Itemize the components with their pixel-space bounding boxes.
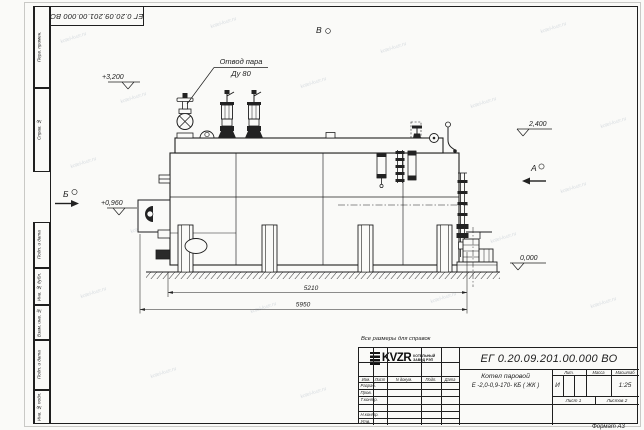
row-tkontr: Т.контр. xyxy=(361,397,378,402)
company-name: КОТЕЛЬНЫЙ ЗАВОД РЭП xyxy=(413,354,435,363)
row-nkontr: Н.контр. xyxy=(361,412,379,417)
view-arrow-b: Б xyxy=(55,189,79,207)
row-prov: Пров. xyxy=(361,390,372,395)
safety-valve-1 xyxy=(218,90,236,138)
col-podp: Подп. xyxy=(421,376,441,382)
foundation-block xyxy=(457,262,497,272)
valve-handwheel xyxy=(177,98,193,102)
elevation-mark-2400: 2,400 xyxy=(517,121,552,136)
product-name-line1: Котел паровой xyxy=(459,371,552,381)
row-razrab: Разраб. xyxy=(361,383,377,388)
steam-outlet-valve xyxy=(177,93,193,138)
burner-box xyxy=(138,200,170,232)
dimension-text: 5210 xyxy=(304,285,319,292)
elevation-text: +0,960 xyxy=(101,200,123,207)
col-docnum: N докум. xyxy=(387,376,421,382)
gauge-pipe-elbow xyxy=(446,122,457,153)
format-note: Формат А3 xyxy=(592,424,625,430)
elevation-text: 0,000 xyxy=(520,255,538,262)
elevation-mark-0000: 0,000 xyxy=(510,255,546,270)
document-number: ЕГ 0.20.09.201.00.000 ВО xyxy=(459,348,639,369)
reference-note: Все размеры для справок xyxy=(361,336,430,342)
col-data: Дата xyxy=(441,376,459,382)
view-arrow-a: А xyxy=(522,163,546,185)
row-utv: Утв. xyxy=(361,419,371,424)
boiler-body xyxy=(170,133,468,266)
safety-valve-2 xyxy=(245,90,263,138)
dimension-text: 5950 xyxy=(296,302,311,309)
sheets-total: Листов 2 xyxy=(595,396,639,404)
product-name-line2: Е -2,0-0,9-170- КБ ( ЖК ) xyxy=(459,381,552,390)
col-izm: Изм. xyxy=(359,376,373,382)
steam-outlet-text-2: Ду 80 xyxy=(230,69,251,78)
drawing-sheet: { "watermark": "kotel-kvzr.ru", "frame_s… xyxy=(0,0,644,430)
view-label: А xyxy=(530,163,537,173)
title-block: Изм. Лист N докум. Подп. Дата Разраб. Пр… xyxy=(358,347,638,424)
elevation-mark-0960: +0,960 xyxy=(101,200,137,215)
dome-fitting xyxy=(200,131,214,138)
ground-hatch xyxy=(146,272,500,279)
small-valve xyxy=(412,126,422,139)
elevation-text: 2,400 xyxy=(528,121,547,128)
scale-value: 1:25 xyxy=(611,375,639,396)
mass-header: Масса xyxy=(586,369,611,375)
sheet-number: Лист 1 xyxy=(552,396,595,404)
steam-outlet-text-1: Отвод пара xyxy=(220,57,263,66)
handwheel-fitting xyxy=(430,134,439,143)
view-label: В xyxy=(316,25,322,35)
elevation-text: +3,200 xyxy=(102,74,124,81)
col-list: Лист xyxy=(373,376,387,382)
lit-value: И xyxy=(552,375,563,396)
elevation-mark-3200: +3,200 xyxy=(102,74,140,89)
manhole xyxy=(185,239,207,254)
view-label: Б xyxy=(63,189,69,199)
view-label-v: В xyxy=(316,25,330,35)
